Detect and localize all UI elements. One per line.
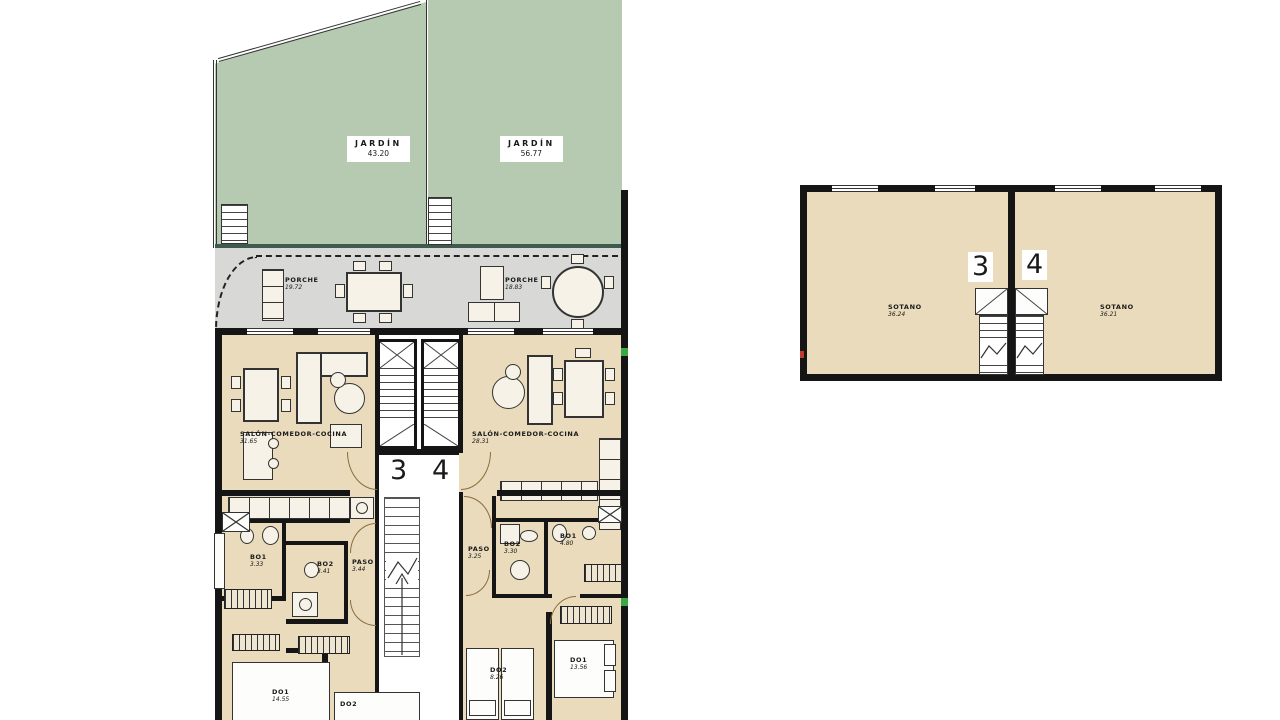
unit-number-3: 3 bbox=[386, 456, 411, 486]
bed1-left-area: 14.55 bbox=[272, 696, 289, 704]
garden-stairs-right bbox=[428, 197, 452, 245]
toilet bbox=[262, 526, 279, 545]
chair bbox=[553, 392, 563, 405]
salon-right-area: 28.31 bbox=[472, 438, 579, 446]
chair bbox=[605, 368, 615, 381]
bed1-left-name: DO1 bbox=[272, 688, 289, 696]
sink-basin bbox=[356, 502, 368, 514]
garden-left-label: JARDÍN 43.20 bbox=[347, 136, 410, 162]
bed2-left-name: DO2 bbox=[340, 700, 357, 708]
sun-lounger bbox=[262, 269, 284, 321]
window bbox=[543, 328, 593, 335]
chair bbox=[281, 376, 291, 389]
shaft-landing bbox=[424, 342, 458, 368]
stairs-down-arrow bbox=[384, 500, 420, 660]
stair-shaft-left bbox=[377, 339, 417, 449]
wall-niche bbox=[214, 533, 225, 589]
garden-right bbox=[428, 0, 622, 248]
wall bbox=[282, 519, 286, 599]
bath2-right-area: 3.30 bbox=[504, 548, 521, 556]
sotano-right-name: SOTANO bbox=[1100, 303, 1134, 311]
dining-table bbox=[243, 368, 279, 422]
window bbox=[1155, 185, 1201, 192]
bath2-left-area: 3.41 bbox=[317, 568, 334, 576]
wardrobe bbox=[584, 564, 622, 582]
porch-boundary-dashed bbox=[256, 255, 618, 257]
sofa bbox=[296, 352, 322, 424]
armchair bbox=[492, 376, 525, 409]
chair bbox=[231, 399, 241, 412]
bath1-left-area: 3.33 bbox=[250, 561, 267, 569]
window bbox=[832, 185, 878, 192]
bed1-right-name: DO1 bbox=[570, 656, 587, 664]
porch-left-area: 19.72 bbox=[285, 284, 319, 292]
chair bbox=[231, 376, 241, 389]
porch-right-name: PORCHE bbox=[505, 276, 539, 284]
paso-left-label: PASO 3.44 bbox=[352, 558, 374, 574]
stair-landing bbox=[975, 288, 1008, 315]
bath1-left-label: BO1 3.33 bbox=[250, 553, 267, 569]
window bbox=[468, 328, 514, 335]
window bbox=[935, 185, 975, 192]
chair bbox=[403, 284, 413, 298]
bath2-right-name: BO2 bbox=[504, 540, 521, 548]
bath2-right-label: BO2 3.30 bbox=[504, 540, 521, 556]
dining-table bbox=[564, 360, 604, 418]
porch-bench bbox=[468, 302, 520, 322]
salon-right-label: SALÓN-COMEDOR-COCINA 28.31 bbox=[472, 430, 579, 446]
garden-left-boundary bbox=[213, 60, 217, 248]
chair bbox=[379, 313, 392, 323]
wall bbox=[497, 490, 621, 496]
wardrobe bbox=[560, 606, 612, 624]
shower-drain bbox=[299, 598, 312, 611]
wardrobe bbox=[224, 589, 272, 609]
sotano-left-area: 36.24 bbox=[888, 311, 922, 319]
paso-right-area: 3.25 bbox=[468, 553, 490, 561]
sotano-right-area: 36.21 bbox=[1100, 311, 1134, 319]
paso-right-label: PASO 3.25 bbox=[468, 545, 490, 561]
sotano-right-label: SOTANO 36.21 bbox=[1100, 303, 1134, 319]
chair bbox=[575, 348, 591, 358]
ventilation-shaft bbox=[222, 512, 250, 532]
garden-left-name: JARDÍN bbox=[355, 138, 402, 149]
wall bbox=[544, 522, 548, 596]
bed2-left-label: DO2 bbox=[340, 700, 357, 708]
stair-break-line bbox=[1015, 340, 1044, 362]
washbasin bbox=[582, 526, 596, 540]
bed1-left-label: DO1 14.55 bbox=[272, 688, 289, 704]
round-table-porch-right bbox=[552, 266, 604, 318]
window bbox=[247, 328, 293, 335]
wardrobe bbox=[232, 634, 280, 651]
chair bbox=[335, 284, 345, 298]
wall-right bbox=[621, 190, 628, 720]
dining-table-porch-left bbox=[346, 272, 402, 312]
entry-mark-green bbox=[621, 348, 628, 356]
stair-break-line bbox=[979, 340, 1008, 362]
wall bbox=[580, 594, 621, 598]
wall bbox=[496, 594, 552, 598]
wall bbox=[496, 518, 606, 522]
mark-red bbox=[800, 351, 804, 358]
wall bbox=[344, 541, 348, 623]
sotano-left-name: SOTANO bbox=[888, 303, 922, 311]
paso-right-name: PASO bbox=[468, 545, 490, 553]
shower-drain bbox=[510, 560, 530, 580]
stair-shaft-right bbox=[421, 339, 461, 449]
basement-unit-number-3: 3 bbox=[968, 252, 993, 282]
wall bbox=[492, 496, 496, 598]
window bbox=[318, 328, 370, 335]
garden-divider bbox=[426, 0, 427, 248]
garden-right-name: JARDÍN bbox=[508, 138, 555, 149]
sotano-left-label: SOTANO 36.24 bbox=[888, 303, 922, 319]
bed1-right-area: 13.56 bbox=[570, 664, 587, 672]
bath2-left-label: BO2 3.41 bbox=[317, 560, 334, 576]
wall bbox=[286, 541, 348, 545]
bath2-left-name: BO2 bbox=[317, 560, 334, 568]
wall bbox=[546, 612, 552, 720]
unit-number-4: 4 bbox=[428, 456, 453, 486]
porch-right-area: 18.83 bbox=[505, 284, 539, 292]
stool bbox=[268, 458, 279, 469]
core-wall-right bbox=[459, 492, 463, 720]
salon-right-name: SALÓN-COMEDOR-COCINA bbox=[472, 430, 579, 438]
washbasin bbox=[520, 530, 538, 542]
salon-left-label: SALÓN-COMEDOR-COCINA 31.65 bbox=[240, 430, 347, 446]
pillow bbox=[504, 700, 531, 716]
wall bbox=[286, 619, 348, 624]
bed2-right-area: 8.26 bbox=[490, 674, 507, 682]
garden-stairs-left bbox=[221, 204, 248, 244]
chair bbox=[379, 261, 392, 271]
chair bbox=[553, 368, 563, 381]
bed2-right-name: DO2 bbox=[490, 666, 507, 674]
salon-left-area: 31.65 bbox=[240, 438, 347, 446]
paso-left-name: PASO bbox=[352, 558, 374, 566]
shaft-landing bbox=[380, 424, 414, 446]
chair bbox=[571, 254, 584, 264]
chair bbox=[353, 261, 366, 271]
side-plant bbox=[505, 364, 521, 380]
wall-left bbox=[215, 331, 222, 720]
porch-left-name: PORCHE bbox=[285, 276, 319, 284]
paso-left-area: 3.44 bbox=[352, 566, 374, 574]
chair bbox=[605, 392, 615, 405]
bed2-right-label: DO2 8.26 bbox=[490, 666, 507, 682]
porch-cabinet bbox=[480, 266, 504, 300]
chair bbox=[541, 276, 551, 289]
chair bbox=[604, 276, 614, 289]
shaft-landing bbox=[380, 342, 414, 368]
basement-unit-number-4: 4 bbox=[1022, 250, 1047, 280]
bath1-right-label: BO1 4.80 bbox=[560, 532, 577, 548]
pillow bbox=[604, 670, 616, 692]
salon-left-name: SALÓN-COMEDOR-COCINA bbox=[240, 430, 347, 438]
chair bbox=[353, 313, 366, 323]
garden-left-area: 43.20 bbox=[355, 149, 402, 160]
bed1-right-label: DO1 13.56 bbox=[570, 656, 587, 672]
ventilation-shaft bbox=[598, 506, 622, 523]
chair bbox=[281, 399, 291, 412]
bath1-right-name: BO1 bbox=[560, 532, 577, 540]
stair-landing bbox=[1015, 288, 1048, 315]
pillow bbox=[469, 700, 496, 716]
bath1-left-name: BO1 bbox=[250, 553, 267, 561]
entry-mark-green bbox=[621, 598, 628, 606]
floorplan-canvas: JARDÍN 43.20 JARDÍN 56.77 PORCHE 19.72 P… bbox=[0, 0, 1280, 720]
shaft-landing bbox=[424, 424, 458, 446]
stair-treads bbox=[380, 368, 414, 424]
stair-treads bbox=[424, 368, 458, 424]
porch-left-label: PORCHE 19.72 bbox=[285, 276, 319, 292]
basement-party-wall bbox=[1008, 192, 1015, 374]
sofa bbox=[527, 355, 553, 425]
wall bbox=[222, 490, 350, 496]
garden-right-area: 56.77 bbox=[508, 149, 555, 160]
wardrobe bbox=[298, 636, 350, 654]
side-plant bbox=[330, 372, 346, 388]
window bbox=[1055, 185, 1101, 192]
pillow bbox=[604, 644, 616, 666]
garden-right-label: JARDÍN 56.77 bbox=[500, 136, 563, 162]
bath1-right-area: 4.80 bbox=[560, 540, 577, 548]
porch-right-label: PORCHE 18.83 bbox=[505, 276, 539, 292]
